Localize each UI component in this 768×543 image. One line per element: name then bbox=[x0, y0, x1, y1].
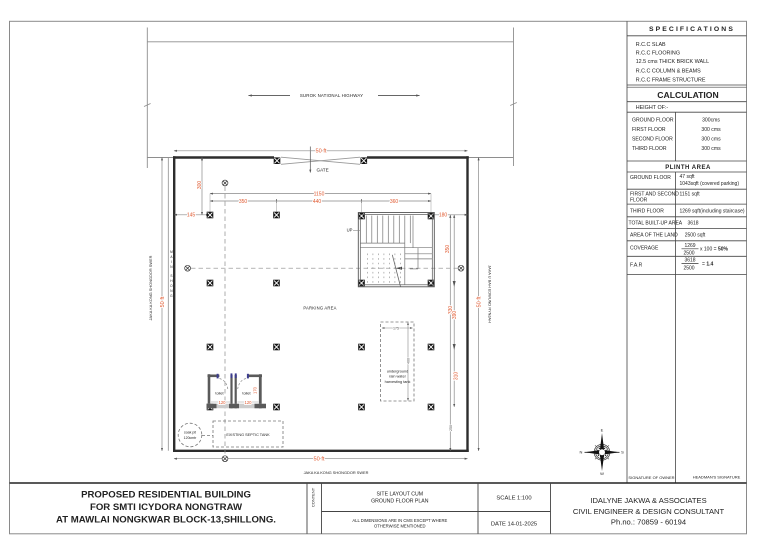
svg-text:COVERAGE: COVERAGE bbox=[630, 245, 659, 251]
svg-text:FIRST FLOOR: FIRST FLOOR bbox=[632, 127, 666, 133]
svg-text:120cmtr: 120cmtr bbox=[184, 436, 197, 440]
svg-text:EXISTING SEPTIC TANK: EXISTING SEPTIC TANK bbox=[226, 433, 270, 437]
svg-text:2500: 2500 bbox=[683, 251, 694, 257]
svg-text:120: 120 bbox=[219, 400, 227, 405]
svg-text:THIRD FLOOR: THIRD FLOOR bbox=[630, 208, 664, 214]
svg-text:SIGNATURE OF OWNER: SIGNATURE OF OWNER bbox=[628, 475, 674, 480]
svg-text:350: 350 bbox=[239, 199, 248, 205]
svg-text:W: W bbox=[600, 471, 604, 476]
svg-text:R.C.C FLOORING: R.C.C FLOORING bbox=[636, 50, 680, 56]
svg-text:HEADMAN'S SIGNATURE: HEADMAN'S SIGNATURE bbox=[693, 474, 741, 479]
svg-text:12.5 cms THICK BRICK WALL: 12.5 cms THICK BRICK WALL bbox=[636, 59, 709, 65]
svg-text:1151 sqft: 1151 sqft bbox=[680, 191, 701, 197]
svg-text:R.C.C COLUMN & BEAMS: R.C.C COLUMN & BEAMS bbox=[636, 68, 701, 74]
svg-text:A: A bbox=[170, 255, 173, 259]
svg-text:50 ft: 50 ft bbox=[160, 296, 166, 307]
svg-text:Ph.no.: 70859 - 60194: Ph.no.: 70859 - 60194 bbox=[611, 518, 686, 527]
svg-text:JAKA KA KONG SHONGDOR SWER: JAKA KA KONG SHONGDOR SWER bbox=[304, 470, 369, 475]
svg-text:300 cms: 300 cms bbox=[701, 127, 721, 133]
svg-text:H: H bbox=[170, 279, 173, 283]
svg-text:O: O bbox=[170, 284, 173, 288]
svg-text:DATE 14-01-2025: DATE 14-01-2025 bbox=[491, 522, 537, 528]
svg-text:N: N bbox=[580, 450, 583, 455]
svg-text:GATE: GATE bbox=[317, 167, 329, 172]
svg-text:JAKA KA KONG SHONGDOR SWER: JAKA KA KONG SHONGDOR SWER bbox=[148, 255, 153, 320]
svg-text:3618: 3618 bbox=[684, 258, 695, 264]
svg-text:CALCULATION: CALCULATION bbox=[657, 90, 718, 100]
svg-text:S: S bbox=[621, 450, 624, 455]
svg-text:OTHERWISE MENTIONED: OTHERWISE MENTIONED bbox=[374, 524, 426, 529]
svg-text:1269: 1269 bbox=[684, 243, 695, 249]
svg-text:I: I bbox=[171, 260, 172, 264]
svg-text:toilet: toilet bbox=[242, 391, 251, 396]
svg-text:PARKING AREA: PARKING AREA bbox=[303, 306, 336, 311]
svg-text:CONTENT: CONTENT bbox=[310, 487, 315, 507]
svg-text:SITE LAYOUT CUM: SITE LAYOUT CUM bbox=[377, 491, 424, 497]
svg-text:CIVIL ENGINEER & DESIGN CONSUL: CIVIL ENGINEER & DESIGN CONSULTANT bbox=[573, 507, 725, 516]
svg-text:1043sqft (covered parking): 1043sqft (covered parking) bbox=[680, 181, 740, 187]
svg-text:FLOOR: FLOOR bbox=[630, 197, 648, 203]
svg-text:47 sqft: 47 sqft bbox=[680, 174, 696, 180]
svg-text:250: 250 bbox=[449, 425, 453, 431]
svg-text:350: 350 bbox=[445, 245, 451, 254]
svg-text:390: 390 bbox=[452, 311, 458, 320]
svg-text:N: N bbox=[170, 289, 173, 293]
svg-text:GROUND FLOOR: GROUND FLOOR bbox=[632, 117, 674, 123]
svg-text:underground: underground bbox=[387, 370, 409, 374]
svg-text:M: M bbox=[170, 250, 173, 254]
svg-text:440: 440 bbox=[313, 199, 322, 205]
svg-text:= 1.4: = 1.4 bbox=[702, 261, 713, 267]
svg-text:145: 145 bbox=[187, 213, 196, 219]
svg-text:1150: 1150 bbox=[314, 191, 325, 197]
svg-text:GROUND FLOOR PLAN: GROUND FLOOR PLAN bbox=[371, 498, 429, 504]
svg-text:GROUND FLOOR: GROUND FLOOR bbox=[630, 175, 671, 181]
svg-text:G: G bbox=[170, 294, 173, 298]
svg-text:170: 170 bbox=[253, 386, 258, 394]
svg-text:UP: UP bbox=[347, 228, 353, 233]
svg-text:50 ft: 50 ft bbox=[314, 457, 325, 463]
svg-text:PROPOSED RESIDENTIAL BUILDING: PROPOSED RESIDENTIAL BUILDING bbox=[81, 489, 251, 500]
svg-text:360: 360 bbox=[390, 199, 399, 205]
svg-text:AREA OF THE LAND: AREA OF THE LAND bbox=[630, 232, 678, 238]
svg-text:N: N bbox=[170, 265, 173, 269]
svg-text:SCALE 1:100: SCALE 1:100 bbox=[496, 496, 531, 502]
svg-text:harvesting tank: harvesting tank bbox=[385, 380, 411, 384]
svg-text:400: 400 bbox=[406, 358, 410, 364]
svg-text:AT MAWLAI NONGKWAR BLOCK-13,SH: AT MAWLAI NONGKWAR BLOCK-13,SHILLONG. bbox=[56, 514, 276, 525]
svg-text:HEIGHT OF:-: HEIGHT OF:- bbox=[636, 105, 669, 111]
svg-text:120: 120 bbox=[245, 400, 253, 405]
svg-text:3618: 3618 bbox=[687, 220, 698, 226]
svg-text:JAKA U BAH EDWUND RYNJAH: JAKA U BAH EDWUND RYNJAH bbox=[488, 265, 493, 323]
svg-text:S: S bbox=[170, 274, 172, 278]
svg-text:E: E bbox=[601, 428, 604, 433]
svg-text:SUROK NATIONAL HIGHWAY: SUROK NATIONAL HIGHWAY bbox=[300, 93, 363, 98]
svg-text:310: 310 bbox=[453, 372, 459, 381]
svg-text:300: 300 bbox=[197, 181, 203, 190]
svg-text:FOR SMTI ICYDORA NONGTRAW: FOR SMTI ICYDORA NONGTRAW bbox=[90, 502, 243, 513]
svg-text:50 ft: 50 ft bbox=[476, 296, 482, 307]
svg-text:x 100 = 50%: x 100 = 50% bbox=[700, 246, 728, 252]
svg-text:175: 175 bbox=[393, 326, 399, 330]
svg-text:50 ft: 50 ft bbox=[316, 149, 327, 155]
svg-text:PLINTH AREA: PLINTH AREA bbox=[665, 165, 711, 171]
svg-text:rain water: rain water bbox=[389, 375, 406, 379]
svg-text:R.C.C FRAME STRUCTURE: R.C.C FRAME STRUCTURE bbox=[636, 77, 706, 83]
svg-text:TOTAL BUILT-UP AREA: TOTAL BUILT-UP AREA bbox=[629, 220, 683, 226]
svg-text:toilet: toilet bbox=[215, 391, 224, 396]
svg-text:300 cms: 300 cms bbox=[701, 146, 721, 152]
svg-text:ALL DIMENSIONS ARE IN CMS EXCE: ALL DIMENSIONS ARE IN CMS EXCEPT WHERE bbox=[352, 518, 447, 523]
svg-text:180: 180 bbox=[439, 213, 448, 219]
svg-text:R.C.C SLAB: R.C.C SLAB bbox=[636, 42, 666, 48]
svg-text:SECOND FLOOR: SECOND FLOOR bbox=[632, 136, 673, 142]
svg-text:300 cms: 300 cms bbox=[701, 136, 721, 142]
svg-text:1269 sqft(including staircase): 1269 sqft(including staircase) bbox=[680, 208, 745, 214]
svg-text:300cms: 300cms bbox=[702, 117, 720, 123]
svg-text:SPECIFICATIONS: SPECIFICATIONS bbox=[649, 26, 735, 33]
svg-text:IDALYNE JAKWA & ASSOCIATES: IDALYNE JAKWA & ASSOCIATES bbox=[590, 496, 706, 505]
svg-text:THIRD FLOOR: THIRD FLOOR bbox=[632, 146, 667, 152]
svg-text:soak pit: soak pit bbox=[184, 431, 196, 435]
svg-text:2500: 2500 bbox=[683, 265, 694, 271]
svg-text:F.A.R: F.A.R bbox=[630, 262, 643, 268]
svg-text:2500 sqft: 2500 sqft bbox=[685, 232, 706, 238]
